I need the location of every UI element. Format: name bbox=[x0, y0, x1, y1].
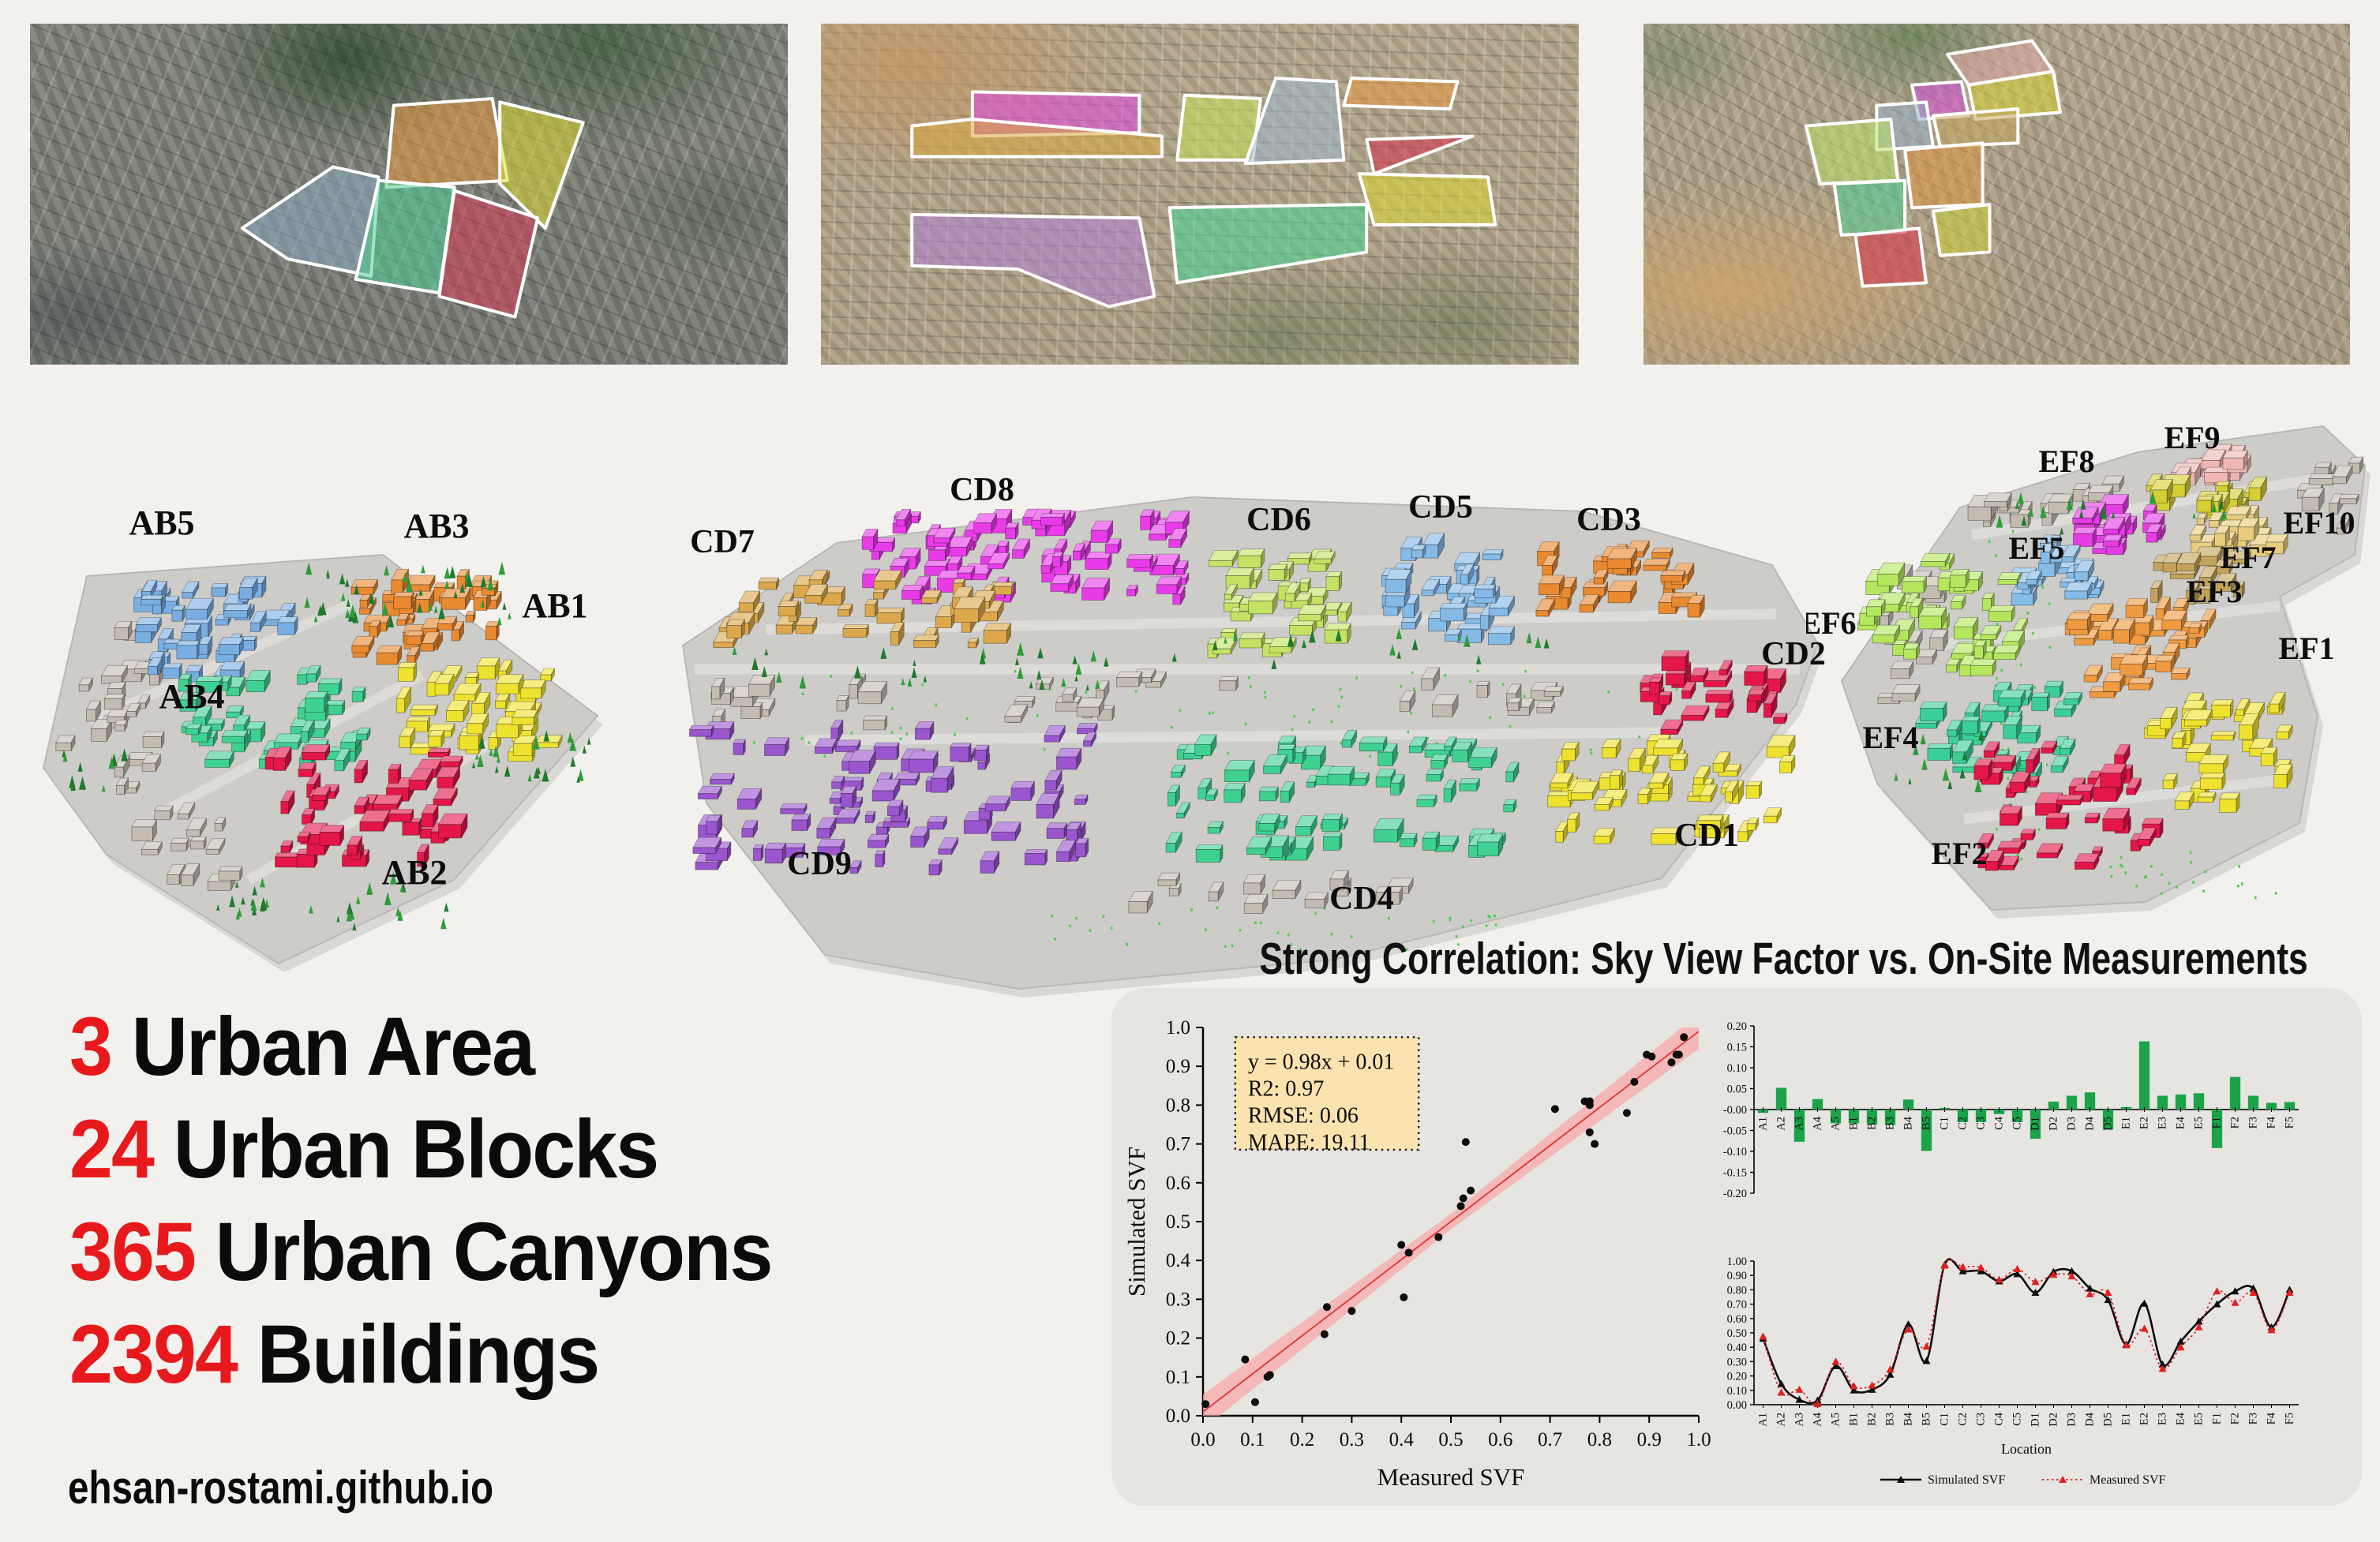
block-label-CD9: CD9 bbox=[787, 846, 852, 882]
block-label-EF4: EF4 bbox=[1862, 720, 1918, 755]
block-label-CD1: CD1 bbox=[1674, 818, 1739, 854]
svg-text:D2: D2 bbox=[2048, 1413, 2060, 1427]
satellite-overlay-area3 bbox=[1644, 24, 2350, 365]
block-label-AB4: AB4 bbox=[159, 677, 224, 716]
svg-text:0.1: 0.1 bbox=[1166, 1367, 1190, 1388]
svf-comparison-line-chart: 0.000.100.200.300.400.500.600.700.800.90… bbox=[1705, 1241, 2360, 1503]
svg-text:B2: B2 bbox=[1866, 1413, 1879, 1426]
stat-value: 3 bbox=[69, 1001, 111, 1093]
svg-text:F5: F5 bbox=[2284, 1117, 2296, 1128]
statistics-list: 3 Urban Area 24 Urban Blocks 365 Urban C… bbox=[69, 996, 816, 1406]
map-block-overlay bbox=[1170, 204, 1367, 283]
svg-text:E3: E3 bbox=[2157, 1117, 2169, 1129]
svg-text:0.4: 0.4 bbox=[1389, 1429, 1415, 1450]
bar-category-labels: A1A2A3A4A5B1B2B3B4B5C1C2C3C4C5D1D2D3D4D5… bbox=[1757, 1116, 2296, 1130]
svg-text:0.10: 0.10 bbox=[1727, 1385, 1747, 1398]
svg-text:A3: A3 bbox=[1793, 1413, 1806, 1427]
svg-text:C3: C3 bbox=[1975, 1413, 1988, 1426]
website-link[interactable]: ehsan-rostami.github.io bbox=[68, 1462, 587, 1514]
block-label-EF1: EF1 bbox=[2278, 631, 2334, 666]
block-label-EF6: EF6 bbox=[1806, 605, 1857, 641]
annotation-line: MAPE: 19.11 bbox=[1248, 1130, 1370, 1155]
scatter-point bbox=[1400, 1293, 1407, 1301]
svg-text:-0.15: -0.15 bbox=[1723, 1167, 1747, 1180]
stat-value: 365 bbox=[69, 1206, 195, 1298]
map-block-overlay bbox=[1905, 143, 1982, 208]
scatter-point bbox=[1241, 1356, 1249, 1364]
svg-text:A2: A2 bbox=[1775, 1117, 1788, 1131]
svg-text:B5: B5 bbox=[1921, 1117, 1933, 1130]
map-block-overlay bbox=[1806, 119, 1898, 184]
model-AB: AB5AB3AB1AB4AB2 bbox=[43, 503, 603, 972]
svg-text:0.40: 0.40 bbox=[1727, 1342, 1747, 1354]
svg-text:E2: E2 bbox=[2138, 1413, 2151, 1425]
svg-text:0.8: 0.8 bbox=[1587, 1429, 1612, 1450]
svg-text:B1: B1 bbox=[1848, 1413, 1861, 1426]
scatter-point bbox=[1643, 1050, 1651, 1058]
svg-text:C1: C1 bbox=[1939, 1117, 1951, 1130]
stat-urban-blocks: 24 Urban Blocks bbox=[69, 1098, 772, 1201]
map-block-overlay bbox=[1359, 174, 1496, 225]
block-label-CD4: CD4 bbox=[1329, 881, 1394, 917]
svg-text:C4: C4 bbox=[1993, 1412, 2006, 1426]
svg-text:0.1: 0.1 bbox=[1240, 1429, 1265, 1450]
svg-text:-0.05: -0.05 bbox=[1723, 1125, 1747, 1138]
block-label-EF9: EF9 bbox=[2164, 420, 2220, 455]
map-block-overlay bbox=[1177, 95, 1261, 160]
svg-text:-0.20: -0.20 bbox=[1723, 1188, 1747, 1200]
svg-text:0.5: 0.5 bbox=[1166, 1211, 1190, 1233]
x-axis-label: Location bbox=[2001, 1441, 2052, 1457]
scatter-point bbox=[1251, 1398, 1259, 1406]
svg-text:F2: F2 bbox=[2229, 1117, 2242, 1128]
annotation-line: y = 0.98x + 0.01 bbox=[1248, 1050, 1395, 1074]
svg-text:A1: A1 bbox=[1757, 1413, 1770, 1427]
bars bbox=[1758, 1042, 2295, 1151]
scatter-point bbox=[1347, 1307, 1355, 1315]
scatter-point bbox=[1591, 1140, 1599, 1148]
svg-text:D4: D4 bbox=[2084, 1116, 2097, 1130]
svg-text:C5: C5 bbox=[2011, 1117, 2024, 1130]
block-label-AB2: AB2 bbox=[381, 853, 447, 892]
svg-text:F1: F1 bbox=[2211, 1117, 2224, 1128]
svg-text:F5: F5 bbox=[2284, 1413, 2296, 1424]
bar-E2 bbox=[2139, 1042, 2149, 1110]
scatter-point bbox=[1630, 1078, 1638, 1086]
svg-text:E2: E2 bbox=[2138, 1117, 2151, 1129]
svg-text:0.20: 0.20 bbox=[1727, 1020, 1747, 1033]
svg-text:D5: D5 bbox=[2102, 1117, 2115, 1131]
model-CD: CD7CD8CD6CD5CD3CD2CD1CD9CD4 bbox=[683, 472, 1826, 997]
svg-text:A5: A5 bbox=[1830, 1413, 1842, 1427]
svg-text:0.90: 0.90 bbox=[1727, 1270, 1747, 1282]
svg-text:1.0: 1.0 bbox=[1166, 1017, 1190, 1039]
svg-text:0.7: 0.7 bbox=[1166, 1134, 1190, 1155]
svg-text:0.2: 0.2 bbox=[1166, 1328, 1190, 1349]
svg-text:0.5: 0.5 bbox=[1438, 1429, 1463, 1450]
satellite-image-area2 bbox=[821, 24, 1579, 365]
svg-text:C4: C4 bbox=[1993, 1116, 2006, 1130]
svg-text:F1: F1 bbox=[2211, 1413, 2224, 1424]
svg-text:B3: B3 bbox=[1884, 1413, 1897, 1426]
scatter-point bbox=[1462, 1138, 1470, 1146]
scatter-point bbox=[1623, 1109, 1631, 1117]
stat-label: Urban Area bbox=[132, 1001, 534, 1093]
svg-text:B3: B3 bbox=[1884, 1117, 1897, 1130]
scatter-plot-svf: 0.00.00.10.10.20.20.30.30.40.40.50.50.60… bbox=[1115, 994, 1722, 1503]
stat-urban-area: 3 Urban Area bbox=[69, 996, 772, 1098]
map-block-overlay bbox=[1856, 228, 1927, 286]
bar-F2 bbox=[2230, 1077, 2240, 1110]
map-block-overlay bbox=[1835, 181, 1906, 235]
svg-text:0.9: 0.9 bbox=[1637, 1429, 1662, 1450]
bar-A2 bbox=[1776, 1087, 1786, 1110]
svg-text:0.3: 0.3 bbox=[1340, 1429, 1364, 1450]
stat-urban-canyons: 365 Urban Canyons bbox=[69, 1201, 772, 1304]
svg-text:0.6: 0.6 bbox=[1488, 1429, 1512, 1450]
line-axes: 0.000.100.200.300.400.500.600.700.800.90… bbox=[1727, 1256, 2299, 1412]
svg-text:F3: F3 bbox=[2247, 1117, 2260, 1128]
stat-label: Buildings bbox=[257, 1308, 599, 1401]
svg-text:A4: A4 bbox=[1812, 1412, 1824, 1426]
svg-text:F4: F4 bbox=[2266, 1116, 2278, 1128]
map-block-overlay bbox=[242, 167, 379, 275]
block-label-EF7: EF7 bbox=[2220, 540, 2276, 575]
scatter-point bbox=[1586, 1101, 1594, 1109]
svg-text:F3: F3 bbox=[2247, 1413, 2260, 1424]
stat-label: Urban Canyons bbox=[216, 1206, 772, 1298]
svg-text:0.00: 0.00 bbox=[1727, 1399, 1747, 1412]
svg-text:-0.10: -0.10 bbox=[1723, 1146, 1747, 1158]
satellite-overlay-area1 bbox=[30, 24, 788, 365]
svg-text:0.15: 0.15 bbox=[1727, 1042, 1747, 1054]
scatter-point bbox=[1586, 1128, 1594, 1136]
annotation-line: R2: 0.97 bbox=[1248, 1076, 1324, 1101]
svg-text:F4: F4 bbox=[2266, 1412, 2278, 1424]
svg-text:1.00: 1.00 bbox=[1727, 1256, 1747, 1268]
series-measured-svf bbox=[1760, 1259, 2294, 1407]
svg-text:-0.00: -0.00 bbox=[1723, 1104, 1747, 1117]
svg-text:0.10: 0.10 bbox=[1727, 1062, 1747, 1075]
svg-text:0.0: 0.0 bbox=[1190, 1429, 1215, 1450]
block-label-CD5: CD5 bbox=[1408, 489, 1473, 526]
block-label-AB1: AB1 bbox=[522, 586, 587, 625]
svg-text:E5: E5 bbox=[2193, 1413, 2206, 1425]
svg-text:D2: D2 bbox=[2048, 1117, 2060, 1131]
block-label-CD6: CD6 bbox=[1246, 502, 1311, 538]
bar-D4 bbox=[2085, 1092, 2095, 1110]
y-axis-label: Simulated SVF bbox=[1123, 1147, 1150, 1297]
svg-text:0.3: 0.3 bbox=[1166, 1289, 1190, 1310]
line-category-labels: A1A2A3A4A5B1B2B3B4B5C1C2C3C4C5D1D2D3D4D5… bbox=[1757, 1405, 2296, 1457]
map-block-overlay bbox=[1933, 204, 1990, 256]
block-label-AB5: AB5 bbox=[129, 503, 194, 542]
scatter-point bbox=[1405, 1248, 1413, 1256]
svg-text:0.05: 0.05 bbox=[1727, 1084, 1747, 1096]
svg-text:E4: E4 bbox=[2175, 1116, 2187, 1129]
satellite-image-area1 bbox=[30, 24, 788, 365]
svg-text:A1: A1 bbox=[1757, 1117, 1770, 1131]
stat-value: 2394 bbox=[69, 1308, 237, 1401]
block-label-AB3: AB3 bbox=[403, 507, 469, 545]
svg-text:F2: F2 bbox=[2229, 1413, 2242, 1424]
map-block-overlay bbox=[912, 215, 1154, 307]
svg-text:B1: B1 bbox=[1848, 1117, 1861, 1130]
svg-text:B4: B4 bbox=[1902, 1116, 1915, 1130]
correlation-panel-title: Strong Correlation: Sky View Factor vs. … bbox=[1111, 933, 2362, 985]
stat-value: 24 bbox=[69, 1103, 153, 1196]
annotation-line: RMSE: 0.06 bbox=[1248, 1103, 1359, 1128]
svg-text:0.8: 0.8 bbox=[1166, 1095, 1190, 1116]
svg-text:C5: C5 bbox=[2011, 1413, 2024, 1426]
model-3d-blocks-AB: AB5AB3AB1AB4AB2 bbox=[12, 438, 643, 975]
svg-text:D1: D1 bbox=[2030, 1413, 2042, 1427]
fit-annotation: y = 0.98x + 0.01R2: 0.97RMSE: 0.06MAPE: … bbox=[1235, 1037, 1419, 1155]
svg-text:0.2: 0.2 bbox=[1290, 1429, 1314, 1450]
scatter-point bbox=[1467, 1187, 1475, 1195]
block-label-CD8: CD8 bbox=[950, 472, 1014, 508]
svg-text:0.0: 0.0 bbox=[1166, 1405, 1190, 1427]
scatter-point bbox=[1680, 1033, 1688, 1041]
legend-label-measured: Measured SVF bbox=[2090, 1473, 2166, 1487]
svg-text:C2: C2 bbox=[1957, 1117, 1970, 1130]
block-label-CD7: CD7 bbox=[690, 524, 755, 560]
scatter-point bbox=[1551, 1105, 1559, 1113]
model-3d-blocks-CD: CD7CD8CD6CD5CD3CD2CD1CD9CD4 bbox=[647, 432, 1847, 1001]
svg-text:C3: C3 bbox=[1975, 1117, 1988, 1130]
map-block-overlay bbox=[1344, 78, 1457, 109]
scatter-point bbox=[1321, 1331, 1329, 1338]
series-simulated-svf bbox=[1760, 1259, 2294, 1404]
svg-text:D3: D3 bbox=[2066, 1117, 2078, 1131]
block-label-EF10: EF10 bbox=[2283, 505, 2355, 541]
model-3d-blocks-EF: EF9EF8EF10EF7EF5EF3EF6EF1EF4EF2 bbox=[1806, 409, 2380, 930]
svg-text:C1: C1 bbox=[1939, 1413, 1951, 1426]
block-label-EF5: EF5 bbox=[2008, 530, 2064, 566]
svg-text:E4: E4 bbox=[2175, 1412, 2187, 1425]
svg-text:B2: B2 bbox=[1866, 1117, 1879, 1130]
svg-text:B4: B4 bbox=[1902, 1412, 1915, 1426]
svg-text:0.7: 0.7 bbox=[1538, 1429, 1562, 1450]
map-block-overlay bbox=[1246, 78, 1344, 163]
svg-text:E1: E1 bbox=[2120, 1413, 2133, 1425]
infographic-canvas: AB5AB3AB1AB4AB2 CD7CD8CD6CD5CD3CD2CD1CD9… bbox=[0, 0, 2380, 1542]
map-block-overlay bbox=[1366, 137, 1472, 174]
stat-label: Urban Blocks bbox=[174, 1103, 658, 1196]
svg-text:E5: E5 bbox=[2193, 1117, 2206, 1129]
stat-buildings: 2394 Buildings bbox=[69, 1304, 772, 1406]
svg-text:0.70: 0.70 bbox=[1727, 1299, 1747, 1312]
svg-text:0.6: 0.6 bbox=[1166, 1173, 1190, 1194]
block-label-EF3: EF3 bbox=[2186, 574, 2242, 609]
svg-text:0.60: 0.60 bbox=[1727, 1313, 1747, 1326]
svg-text:B5: B5 bbox=[1921, 1413, 1933, 1426]
map-block-overlay bbox=[386, 99, 508, 187]
scatter-point bbox=[1460, 1194, 1467, 1202]
scatter-point bbox=[1457, 1202, 1465, 1210]
svg-text:D1: D1 bbox=[2030, 1117, 2042, 1131]
svg-text:A3: A3 bbox=[1793, 1117, 1806, 1131]
svg-text:E3: E3 bbox=[2157, 1413, 2169, 1425]
legend-label-simulated: Simulated SVF bbox=[1928, 1473, 2005, 1487]
svg-text:0.9: 0.9 bbox=[1166, 1056, 1190, 1077]
scatter-point bbox=[1434, 1233, 1442, 1241]
bar-E5 bbox=[2194, 1093, 2204, 1110]
model-EF: EF9EF8EF10EF7EF5EF3EF6EF1EF4EF2 bbox=[1806, 420, 2371, 919]
svg-text:D5: D5 bbox=[2102, 1413, 2115, 1427]
svg-text:0.20: 0.20 bbox=[1727, 1371, 1747, 1383]
svg-text:D3: D3 bbox=[2066, 1413, 2078, 1427]
legend: Simulated SVFMeasured SVF bbox=[1880, 1473, 2166, 1487]
svg-text:0.30: 0.30 bbox=[1727, 1356, 1747, 1368]
svg-text:0.50: 0.50 bbox=[1727, 1327, 1747, 1340]
svg-text:0.4: 0.4 bbox=[1166, 1250, 1191, 1271]
map-block-overlay bbox=[439, 191, 538, 317]
block-label-EF8: EF8 bbox=[2038, 444, 2094, 479]
scatter-point bbox=[1667, 1058, 1675, 1066]
x-axis-label: Measured SVF bbox=[1377, 1463, 1525, 1491]
svg-text:0.80: 0.80 bbox=[1727, 1284, 1747, 1297]
scatter-point bbox=[1673, 1050, 1681, 1058]
scatter-point bbox=[1397, 1241, 1405, 1249]
svg-text:A4: A4 bbox=[1812, 1116, 1824, 1130]
svg-text:C2: C2 bbox=[1957, 1413, 1970, 1426]
scatter-point bbox=[1323, 1303, 1331, 1311]
block-label-CD3: CD3 bbox=[1576, 502, 1641, 538]
svg-text:E1: E1 bbox=[2120, 1117, 2133, 1129]
satellite-overlay-area2 bbox=[821, 24, 1579, 365]
svg-text:D4: D4 bbox=[2084, 1412, 2097, 1426]
map-block-overlay bbox=[1933, 109, 2018, 147]
difference-bar-chart: -0.20-0.15-0.10-0.05-0.000.050.100.150.2… bbox=[1705, 999, 2360, 1236]
scatter-point bbox=[1201, 1400, 1209, 1408]
svg-text:A2: A2 bbox=[1775, 1413, 1788, 1427]
satellite-image-area3 bbox=[1644, 24, 2350, 365]
svg-text:A5: A5 bbox=[1830, 1117, 1842, 1131]
scatter-point bbox=[1266, 1371, 1274, 1379]
block-label-EF2: EF2 bbox=[1931, 836, 1987, 871]
